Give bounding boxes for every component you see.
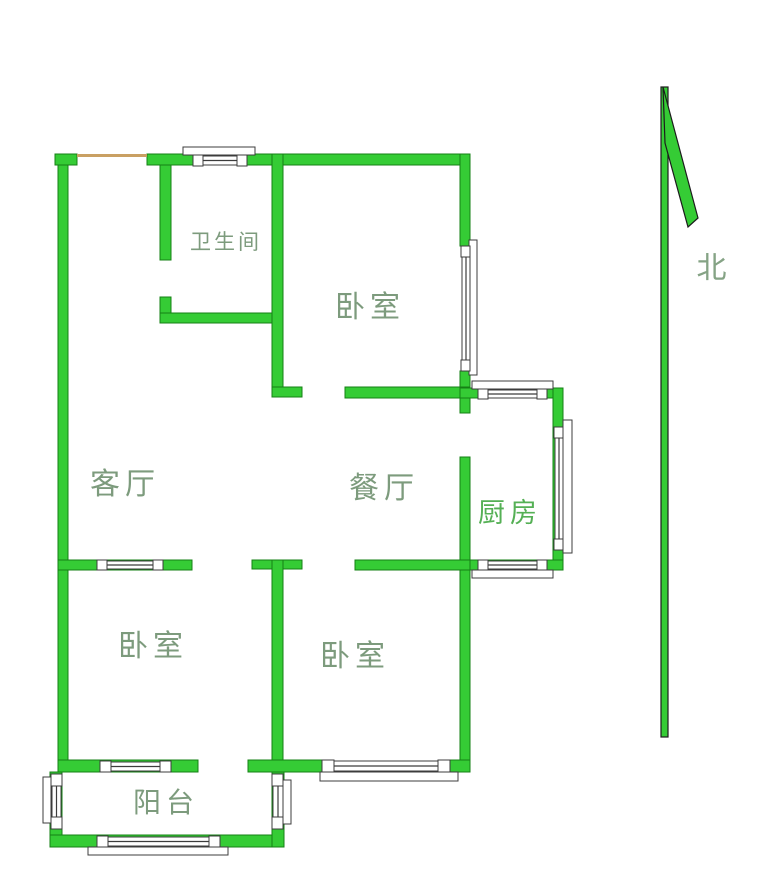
room-label-dining-room: 餐厅 xyxy=(349,471,419,506)
wall-right-upper xyxy=(460,154,470,246)
window-cap xyxy=(193,155,203,166)
window-cap xyxy=(537,389,547,399)
room-label-bedroom-top: 卧室 xyxy=(335,290,405,325)
wall-left xyxy=(58,154,68,772)
window-cap xyxy=(554,427,563,438)
window-balcony-south xyxy=(88,836,228,855)
window-cap xyxy=(461,360,470,371)
wall-divider-upper xyxy=(272,154,283,397)
window-kitchen-east xyxy=(554,420,572,553)
room-label-balcony: 阳台 xyxy=(133,786,199,819)
window-cap xyxy=(237,155,247,166)
wall-divider-lower xyxy=(272,560,283,772)
window-frame xyxy=(472,570,553,578)
window-frame xyxy=(563,420,572,553)
window-frame xyxy=(320,772,458,781)
floor-plan-page: 卫生间 卧室 客厅 餐厅 厨房 卧室 卧室 阳台 北 xyxy=(0,0,762,881)
window-cap xyxy=(100,761,111,772)
window-frame xyxy=(472,381,553,389)
window-cap xyxy=(97,836,108,847)
window-kitchen-north xyxy=(472,381,553,399)
room-label-bedroom-left: 卧室 xyxy=(118,629,188,664)
entry-opening-line xyxy=(77,154,147,157)
window-bedroom-top-east xyxy=(461,240,477,375)
wall-right-lower xyxy=(460,457,470,772)
floor-plan-image: 卫生间 卧室 客厅 餐厅 厨房 卧室 卧室 阳台 北 xyxy=(0,0,762,881)
window-cap xyxy=(51,817,62,829)
window-cap xyxy=(438,760,450,772)
window-top xyxy=(183,147,255,166)
window-cap xyxy=(478,560,488,570)
window-cap xyxy=(537,560,547,570)
compass-north-label: 北 xyxy=(697,251,732,286)
window-cap xyxy=(461,246,470,257)
window-cap xyxy=(51,774,62,786)
window-balcony-west xyxy=(43,774,62,829)
wall-bottom-mid xyxy=(248,760,330,772)
wall-bedroom-top-bottom xyxy=(345,387,470,398)
window-cap xyxy=(272,817,283,829)
wall-bathroom-bottom xyxy=(160,313,283,323)
wall-mid-right xyxy=(355,560,470,570)
wall-bedroom-top-door-stub xyxy=(272,387,302,397)
window-kitchen-south xyxy=(472,560,553,578)
window-cap xyxy=(322,760,334,772)
window-bedroom-left-south xyxy=(100,761,171,772)
north-arrow-icon xyxy=(661,87,698,737)
room-label-bedroom-middle: 卧室 xyxy=(320,639,390,674)
window-balcony-east xyxy=(272,774,291,829)
window-cap xyxy=(209,836,220,847)
window-cap xyxy=(160,761,171,772)
window-frame xyxy=(88,847,228,855)
window-cap xyxy=(272,774,283,786)
window-mid-wall xyxy=(97,560,163,570)
window-frame xyxy=(283,780,291,824)
window-frame xyxy=(43,777,51,823)
window-cap xyxy=(478,389,488,399)
wall-top-left-corner xyxy=(55,154,77,165)
window-cap xyxy=(97,560,107,570)
room-label-kitchen: 厨房 xyxy=(478,498,542,529)
window-frame xyxy=(183,147,255,155)
north-arrow-shaft xyxy=(661,87,668,737)
window-bedroom-middle-south xyxy=(320,760,458,781)
room-label-bathroom: 卫生间 xyxy=(190,230,262,254)
room-label-living-room: 客厅 xyxy=(90,467,160,502)
wall-bottom-right xyxy=(450,760,470,772)
window-cap xyxy=(554,539,563,550)
wall-bathroom-left-upper xyxy=(160,165,171,260)
window-cap xyxy=(153,560,163,570)
